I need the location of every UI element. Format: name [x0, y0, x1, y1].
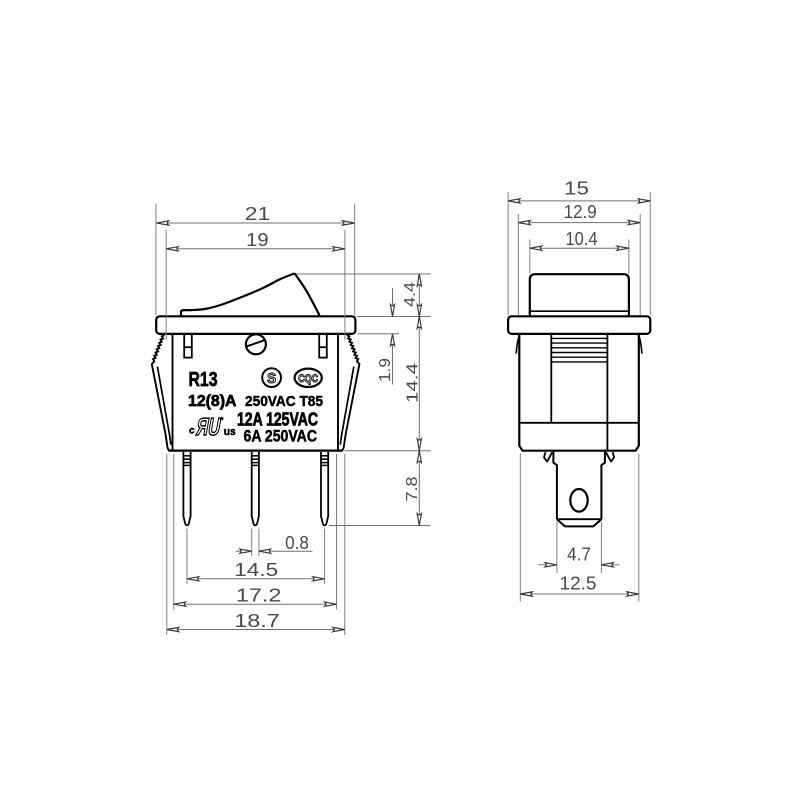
svg-text:c: c [189, 426, 195, 437]
svg-text:21: 21 [245, 203, 270, 224]
svg-text:14.5: 14.5 [234, 559, 278, 580]
svg-text:17.2: 17.2 [236, 584, 282, 605]
svg-text:12.5: 12.5 [560, 572, 597, 593]
svg-text:6A 250VAC: 6A 250VAC [244, 428, 318, 446]
svg-text:4.7: 4.7 [567, 543, 591, 564]
svg-text:19: 19 [246, 229, 269, 250]
svg-text:S: S [267, 370, 276, 387]
svg-text:us: us [224, 426, 236, 438]
svg-text:14.4: 14.4 [404, 363, 421, 403]
svg-text:12.9: 12.9 [564, 201, 597, 222]
svg-text:1.9: 1.9 [377, 358, 394, 382]
svg-text:18.7: 18.7 [234, 610, 280, 631]
svg-text:CQC: CQC [298, 373, 318, 385]
svg-text:10.4: 10.4 [566, 228, 598, 249]
svg-text:R13: R13 [189, 369, 218, 391]
svg-text:12A 125VAC: 12A 125VAC [237, 410, 318, 430]
svg-text:0.8: 0.8 [285, 532, 309, 553]
svg-text:7.8: 7.8 [404, 477, 421, 502]
svg-text:12(8)A: 12(8)A [188, 393, 237, 410]
svg-text:ЯU: ЯU [194, 414, 222, 441]
svg-text:4.4: 4.4 [402, 282, 419, 307]
svg-text:15: 15 [564, 177, 589, 198]
svg-text:250VAC T85: 250VAC T85 [245, 393, 323, 410]
